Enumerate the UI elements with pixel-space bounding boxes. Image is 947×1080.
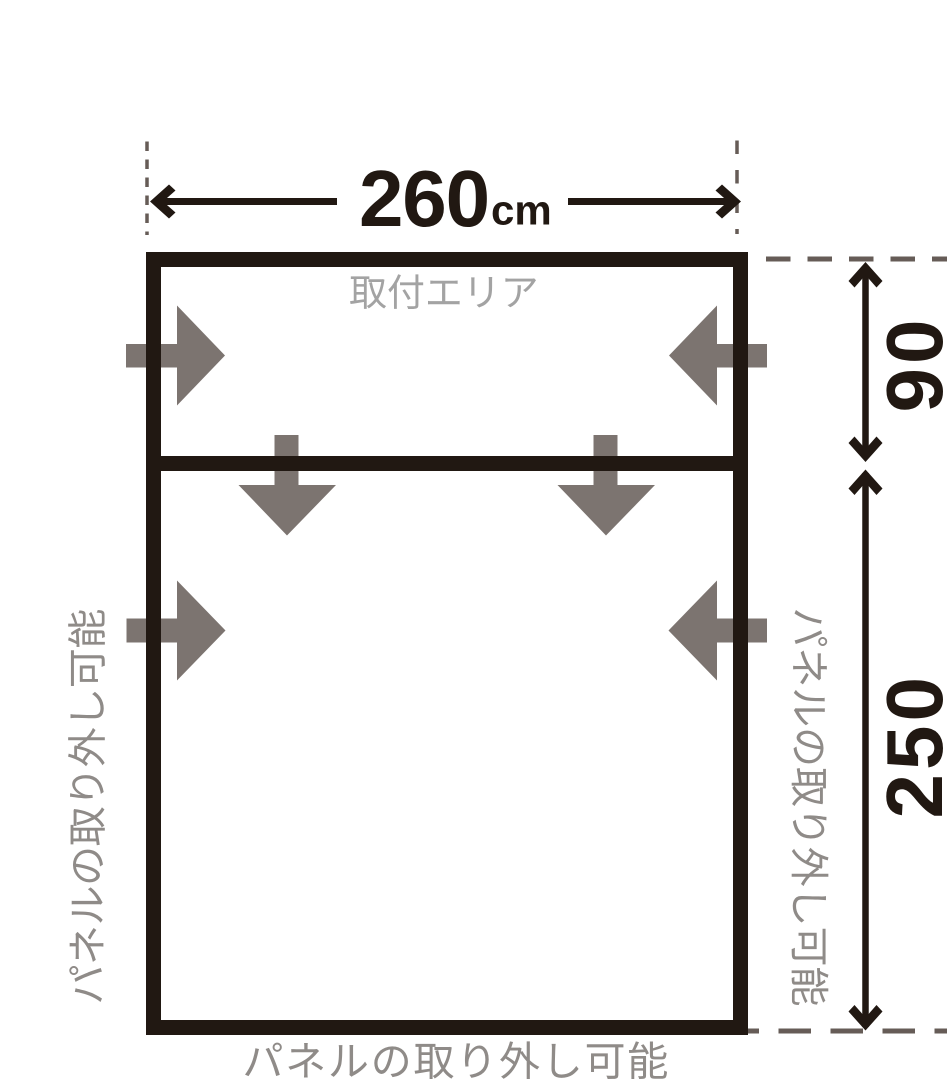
svg-text:260: 260: [359, 154, 489, 243]
svg-text:cm: cm: [491, 187, 552, 234]
svg-text:90: 90: [870, 316, 947, 413]
svg-text:250: 250: [870, 673, 947, 818]
